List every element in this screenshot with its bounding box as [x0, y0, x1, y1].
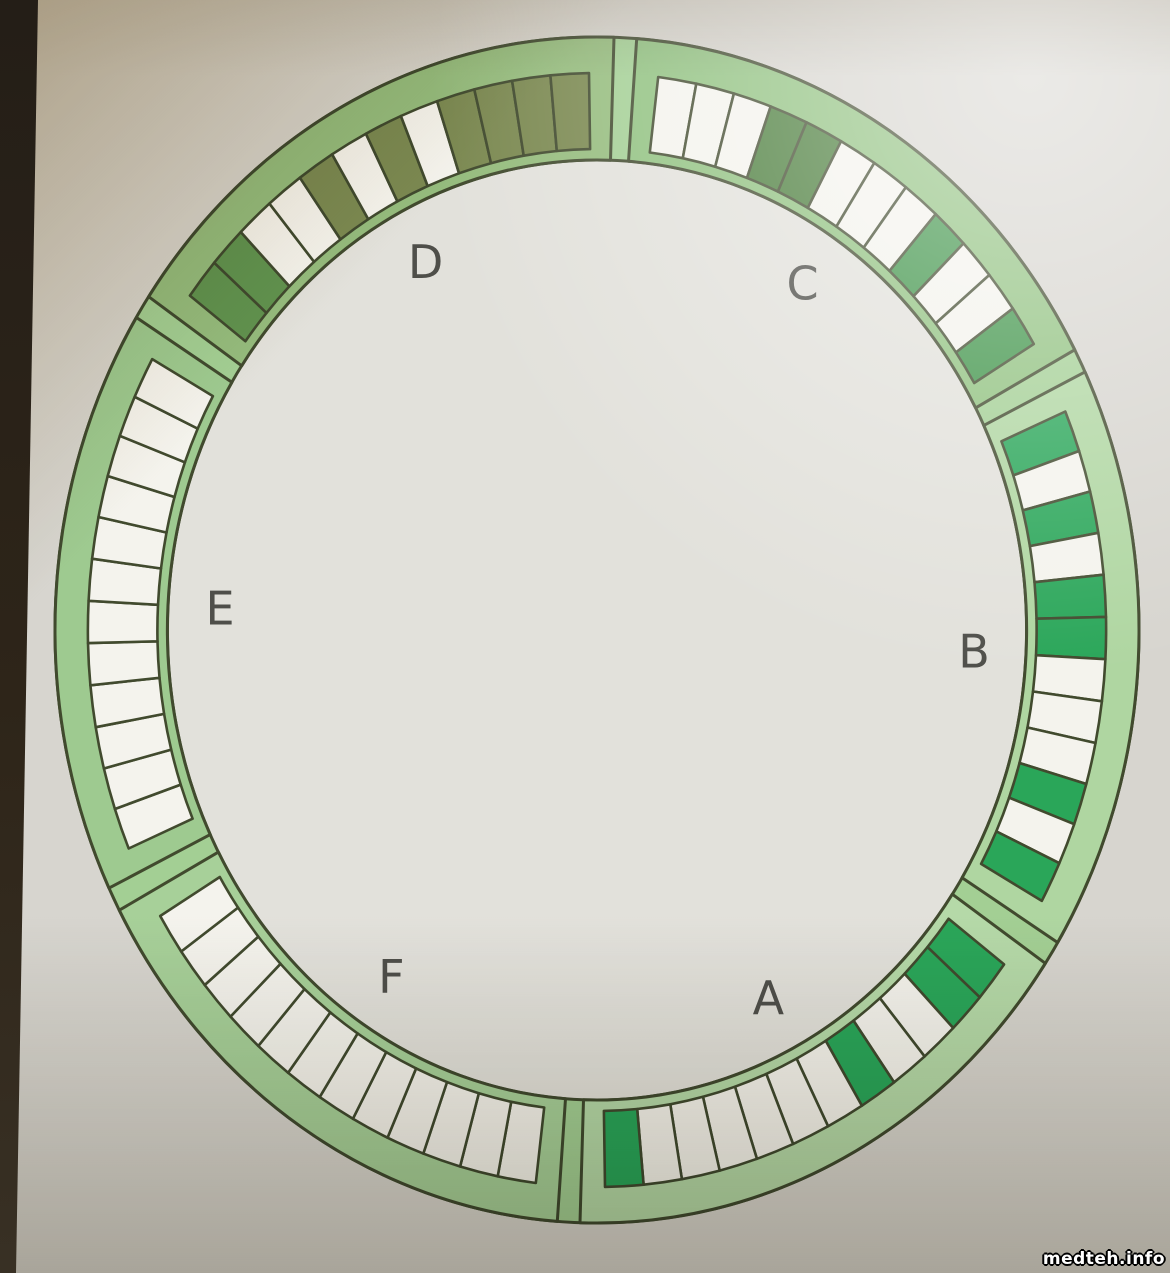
- sample-carousel-diagram: ABCDEF: [0, 0, 1170, 1273]
- sector-label-F: F: [378, 949, 404, 1003]
- watermark: medteh.info: [1043, 1249, 1165, 1269]
- slot-cell-B6[interactable]: [1036, 617, 1106, 659]
- slot-cell-E6[interactable]: [88, 601, 158, 643]
- sector-label-C: C: [787, 257, 819, 311]
- analyzer-screen-photo: ABCDEF medteh.info: [0, 0, 1170, 1273]
- slot-cell-B5[interactable]: [1035, 575, 1107, 619]
- slot-cell-E5[interactable]: [88, 641, 160, 685]
- sector-label-E: E: [205, 581, 234, 635]
- slot-cell-A12[interactable]: [604, 1109, 644, 1187]
- sector-label-D: D: [408, 235, 443, 289]
- sector-label-B: B: [958, 625, 990, 679]
- carousel-inner-disk: [167, 160, 1026, 1100]
- slot-cell-D12[interactable]: [550, 73, 590, 151]
- sector-label-A: A: [753, 971, 785, 1025]
